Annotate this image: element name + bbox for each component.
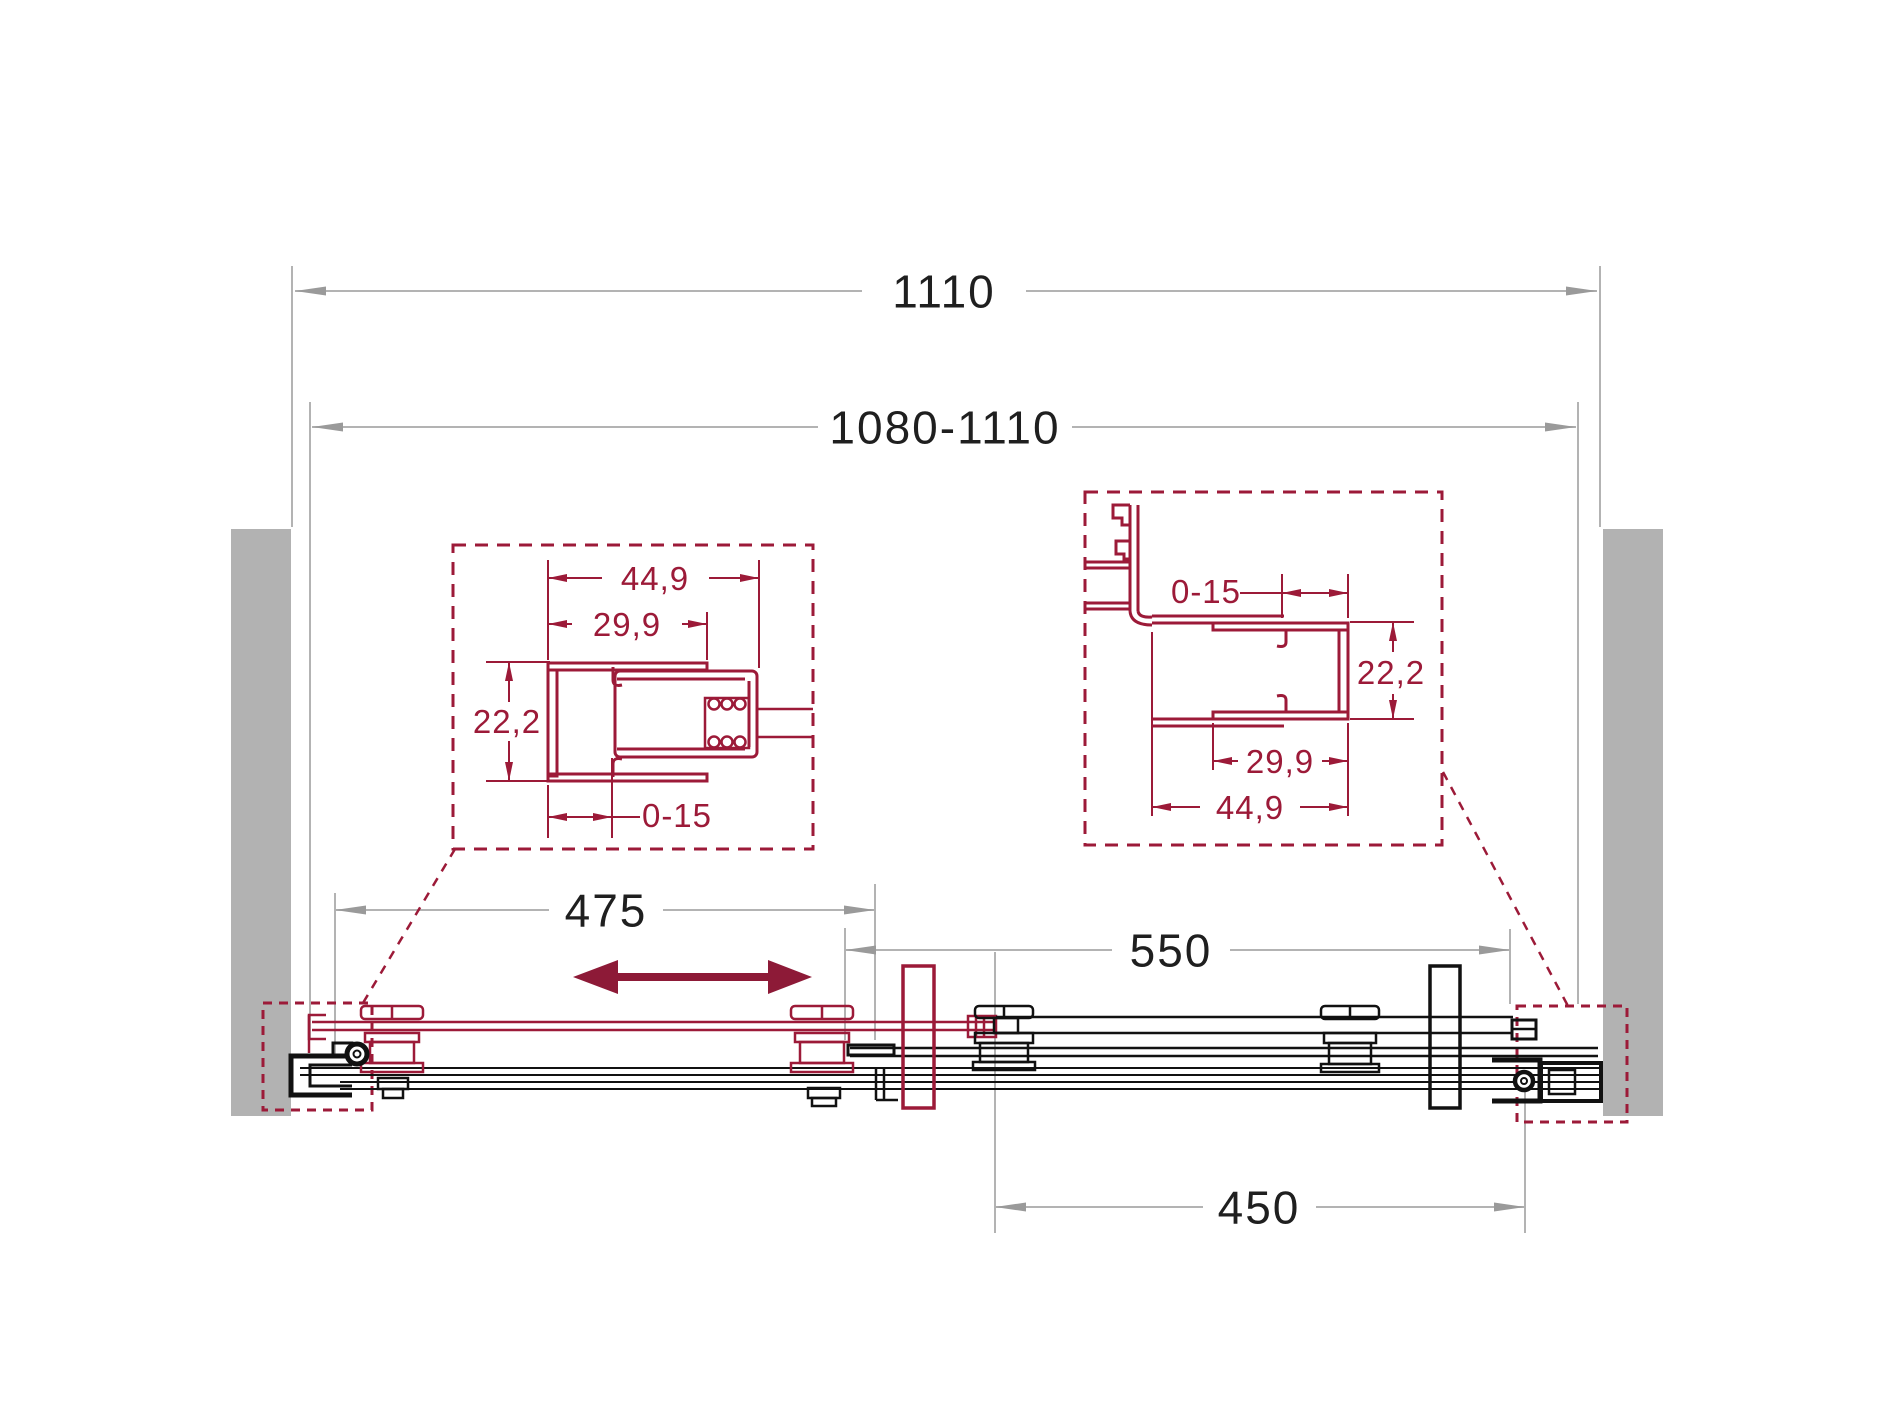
overall-width-label: 1110 — [892, 266, 996, 318]
track-assembly — [291, 966, 1601, 1108]
walls — [231, 529, 1663, 1116]
adjustable-width-label: 1080-1110 — [829, 402, 1060, 454]
bottom-track-rails — [300, 1068, 1601, 1089]
right-adjustment-label: 0-15 — [1171, 573, 1241, 610]
left-detail-view: 44,9 29,9 22,2 0-15 — [473, 560, 813, 838]
glass-clamp-pocket — [705, 698, 749, 748]
center-bracket — [876, 1068, 898, 1100]
right-outer-width-label: 44,9 — [1216, 789, 1284, 826]
roller-clamp — [361, 1006, 423, 1072]
left-leader-line — [360, 849, 455, 1008]
left-wall — [231, 529, 291, 1116]
drawing-canvas: 1110 1080-1110 475 550 450 — [0, 0, 1891, 1418]
sliding-door-handle — [903, 966, 934, 1108]
left-depth-label: 22,2 — [473, 703, 541, 740]
left-inner-width-label: 29,9 — [593, 606, 661, 643]
left-outer-width-label: 44,9 — [621, 560, 689, 597]
left-profile-section — [548, 663, 813, 781]
right-inner-width-label: 29,9 — [1246, 743, 1314, 780]
door-panel-width-label: 475 — [565, 885, 648, 937]
wall-profile-hook — [1085, 505, 1152, 625]
center-guide-block — [848, 1045, 894, 1055]
left-adjustment-label: 0-15 — [642, 797, 712, 834]
right-wall — [1603, 529, 1663, 1116]
roller-clamp — [791, 1006, 853, 1072]
fixed-panel-handle — [1430, 966, 1460, 1108]
detail-callouts — [263, 492, 1627, 1122]
technical-drawing-page: 1110 1080-1110 475 550 450 — [0, 0, 1891, 1418]
rails-and-fixed-glass — [300, 1017, 1601, 1089]
slide-direction-arrow-icon — [573, 960, 812, 994]
pivot-wheel — [1515, 1072, 1533, 1090]
gasket-teeth — [709, 699, 746, 748]
opening-width-label: 550 — [1130, 925, 1213, 977]
fixed-panel-width-label: 450 — [1218, 1182, 1301, 1234]
right-depth-label: 22,2 — [1357, 654, 1425, 691]
pivot-wheel — [347, 1044, 367, 1064]
sliding-panel-left-end — [309, 1015, 326, 1039]
sliding-door-rollers — [361, 1006, 853, 1072]
right-detail-view: 0-15 22,2 29,9 44,9 — [1085, 505, 1425, 826]
right-profile-section — [1085, 505, 1348, 726]
